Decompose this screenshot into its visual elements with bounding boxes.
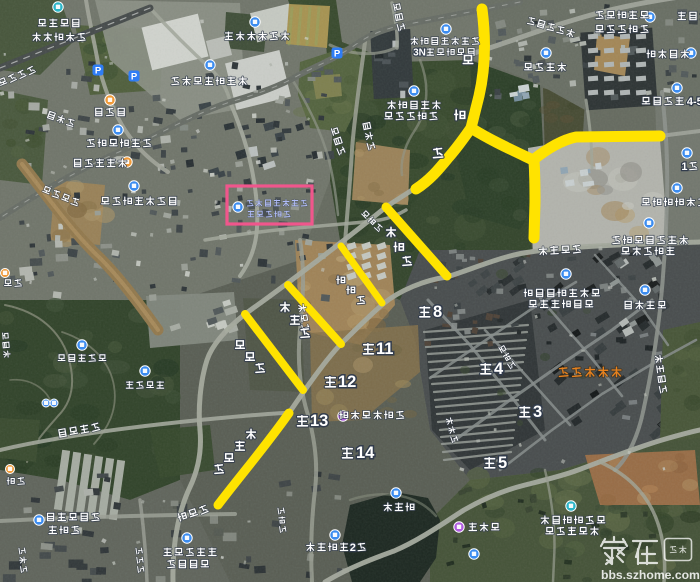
- svg-text:14: 14: [356, 444, 375, 462]
- svg-text:3: 3: [533, 403, 542, 421]
- svg-text:4-5: 4-5: [687, 96, 700, 108]
- svg-text:bbs.szhome.com: bbs.szhome.com: [601, 568, 700, 582]
- svg-text:P: P: [131, 72, 138, 83]
- svg-text:5: 5: [498, 454, 507, 472]
- svg-text:1: 1: [681, 161, 687, 173]
- svg-text:11: 11: [376, 340, 393, 358]
- svg-text:3N: 3N: [413, 48, 426, 59]
- svg-text:4: 4: [494, 360, 504, 378]
- svg-text:P: P: [334, 49, 341, 60]
- svg-text:8: 8: [433, 303, 442, 321]
- svg-text:2: 2: [350, 542, 356, 554]
- svg-text:13: 13: [310, 412, 328, 430]
- svg-text:P: P: [95, 66, 102, 77]
- svg-text:12: 12: [338, 373, 356, 391]
